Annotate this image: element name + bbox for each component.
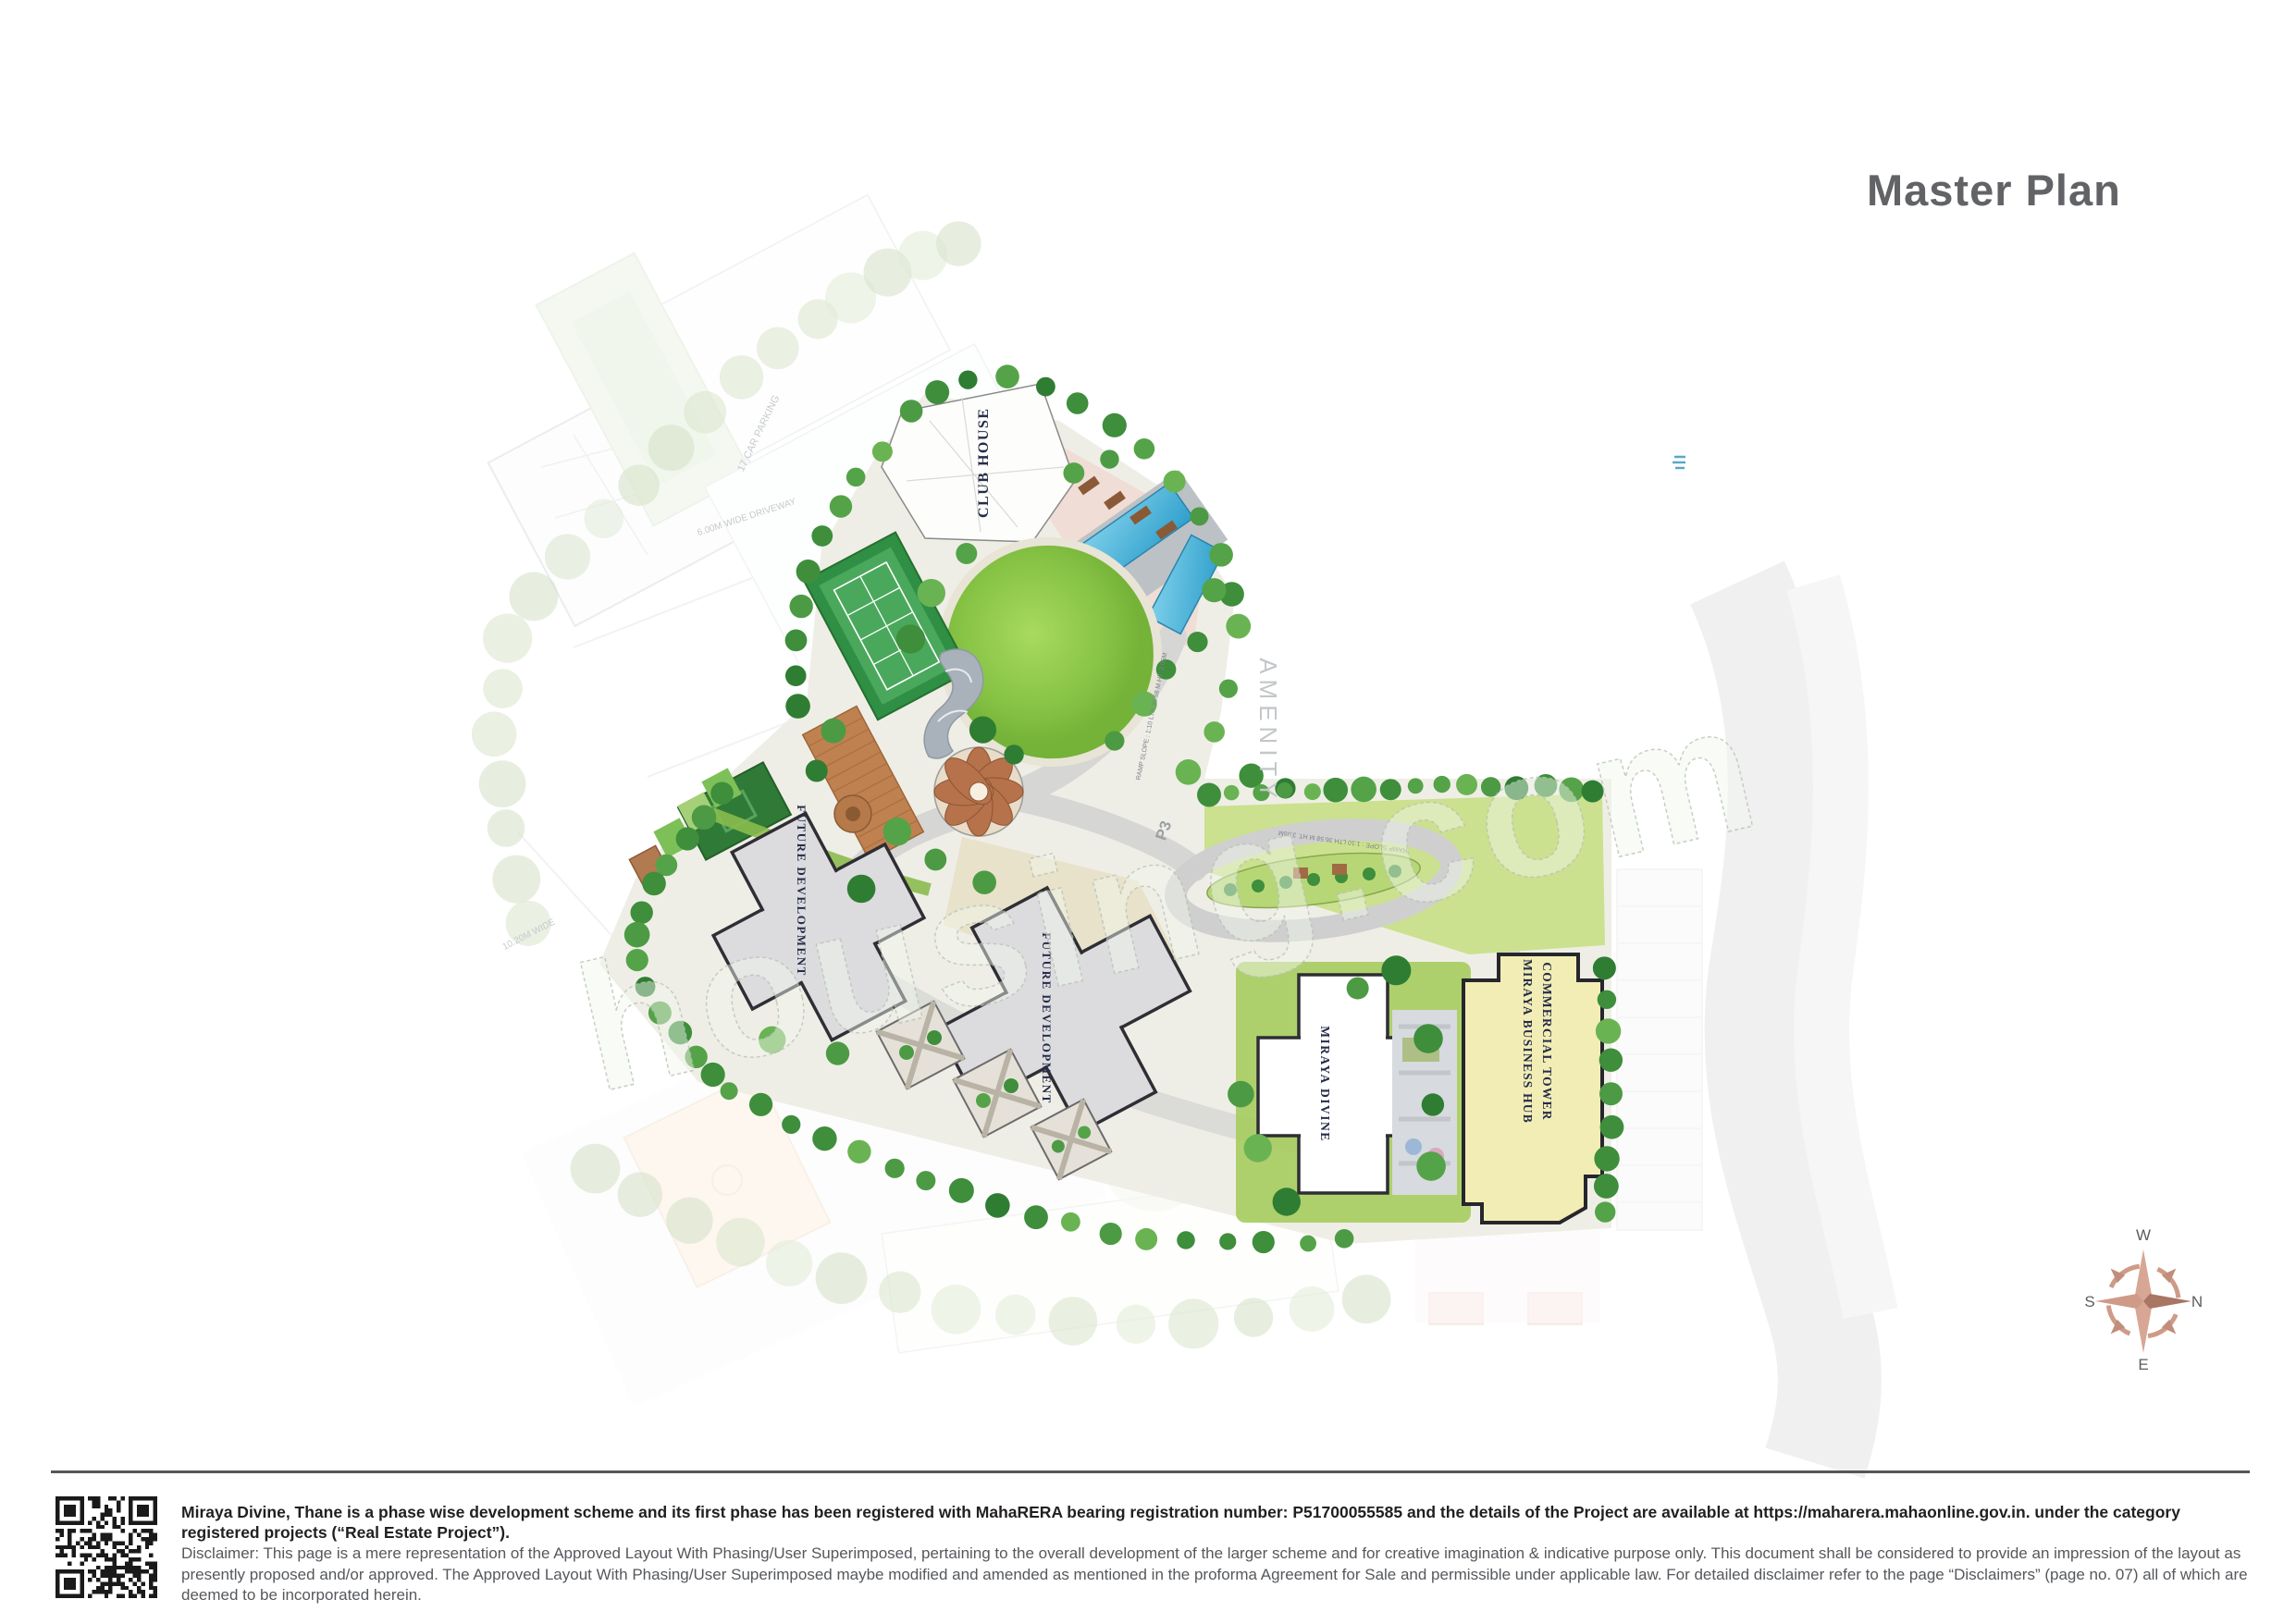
tree [1594, 1174, 1619, 1199]
tree [1593, 956, 1616, 979]
tree [1599, 1049, 1623, 1072]
tree [1049, 1297, 1098, 1346]
club-house-label: CLUB HOUSE [976, 408, 992, 518]
tree [642, 872, 666, 896]
tree [710, 781, 734, 805]
tree [1187, 632, 1207, 652]
qr-code [53, 1496, 160, 1598]
tree [1595, 1201, 1615, 1222]
tree [1117, 1305, 1155, 1344]
tree [479, 760, 526, 807]
tower-miraya-business-hub: MIRAYA BUSINESS HUB COMMERCIAL TOWER [1463, 954, 1602, 1223]
tree [995, 1295, 1036, 1335]
tree [1176, 759, 1202, 785]
tree [1204, 721, 1225, 743]
tree [692, 805, 717, 830]
footer-divider [51, 1470, 2250, 1473]
tree [1234, 1298, 1273, 1336]
tree [821, 719, 846, 744]
tree [1219, 680, 1238, 698]
tree [830, 495, 852, 517]
tree [1100, 449, 1118, 468]
tree [918, 579, 945, 607]
rera-registration-text: Miraya Divine, Thane is a phase wise dev… [181, 1502, 2259, 1543]
compass-south: S [2084, 1293, 2094, 1310]
tree [1103, 413, 1127, 437]
tree [1347, 978, 1369, 1000]
tree [916, 1171, 935, 1190]
compass-east: E [2138, 1356, 2148, 1373]
tree [483, 614, 532, 663]
tree [885, 1159, 905, 1178]
tree [811, 525, 833, 547]
tree [1036, 377, 1055, 397]
tree [584, 498, 623, 538]
tree [789, 595, 812, 618]
tree [1381, 955, 1411, 985]
tree [1596, 1018, 1621, 1043]
tree [816, 1252, 868, 1304]
tree [985, 1193, 1010, 1218]
tree [872, 441, 893, 461]
tree [492, 855, 540, 904]
tree [1219, 1233, 1236, 1249]
tree [1004, 744, 1023, 764]
tree [883, 818, 912, 846]
tree [1300, 1236, 1316, 1252]
tree [545, 534, 590, 579]
tree [1599, 1082, 1623, 1105]
tree [1063, 462, 1084, 484]
tree [1135, 1228, 1157, 1250]
tree [1134, 438, 1155, 460]
disclaimer-text: Disclaimer: This page is a mere represen… [181, 1544, 2259, 1605]
tree [720, 355, 763, 399]
tree [1105, 731, 1124, 750]
tree [1067, 392, 1089, 414]
tree [1253, 1231, 1275, 1253]
compass-arm-south [2095, 1294, 2143, 1309]
compass-arm-east [2135, 1301, 2152, 1353]
tree [969, 717, 996, 744]
tree [1226, 614, 1251, 639]
tree [1209, 543, 1233, 567]
tree [766, 1240, 812, 1286]
compass-north: N [2191, 1293, 2203, 1310]
tree [785, 665, 807, 686]
tree [1273, 1187, 1301, 1215]
tree [1190, 507, 1208, 525]
compass-west: W [2136, 1226, 2151, 1244]
tree [847, 1140, 870, 1163]
tree [716, 1218, 765, 1267]
tree [618, 1172, 662, 1216]
tree [1202, 578, 1226, 602]
tree [666, 1198, 712, 1244]
tree [879, 1272, 920, 1313]
small-blue-mark [1673, 457, 1685, 468]
tree [1244, 1134, 1272, 1162]
footer-text-block: Miraya Divine, Thane is a phase wise dev… [181, 1502, 2259, 1606]
tree [958, 371, 977, 389]
business-hub-label-line1: MIRAYA BUSINESS HUB [1521, 959, 1535, 1124]
site-plan-illustration: CLUB HOUSE [0, 0, 2296, 1624]
tree [846, 468, 866, 487]
tree [806, 760, 828, 782]
business-hub-label-line2: COMMERCIAL TOWER [1540, 962, 1554, 1120]
tree [1594, 1146, 1619, 1171]
master-plan-sheet: Master Plan [0, 0, 2296, 1624]
tree [1024, 1205, 1048, 1229]
tree [796, 560, 821, 584]
tree [785, 694, 810, 719]
tree [932, 1285, 981, 1335]
tree [472, 711, 517, 757]
tree [896, 624, 925, 653]
tree [1598, 990, 1616, 1009]
tree [1061, 1212, 1080, 1232]
tree [1164, 471, 1186, 493]
tree [483, 669, 523, 708]
tree [925, 380, 949, 404]
tree [510, 572, 559, 621]
tree [956, 543, 977, 564]
tree [1335, 1229, 1354, 1249]
tree [618, 464, 660, 506]
tree [1413, 1024, 1443, 1053]
miraya-divine-label: MIRAYA DIVINE [1318, 1026, 1332, 1141]
tree [488, 809, 525, 847]
tree [648, 424, 695, 471]
tree [900, 400, 923, 423]
tree [1228, 1081, 1254, 1108]
tree [1422, 1093, 1444, 1115]
tree [1600, 1115, 1624, 1139]
tree [676, 827, 699, 850]
tree [1177, 1231, 1195, 1249]
tree [1168, 1298, 1218, 1348]
tree [782, 1115, 800, 1134]
tree [1416, 1151, 1446, 1181]
tree [995, 364, 1019, 388]
tree [1342, 1274, 1391, 1323]
tree [757, 327, 799, 370]
tree [684, 391, 726, 434]
tree [1290, 1286, 1335, 1332]
tree [936, 221, 981, 265]
tree [571, 1144, 621, 1194]
tree [949, 1178, 974, 1203]
compass-arm-north [2143, 1294, 2191, 1309]
compass-arm-west [2135, 1249, 2152, 1301]
tree [1100, 1223, 1122, 1245]
tree [785, 630, 808, 652]
compass-rose: W N E S [2084, 1226, 2203, 1373]
tree [812, 1126, 836, 1150]
